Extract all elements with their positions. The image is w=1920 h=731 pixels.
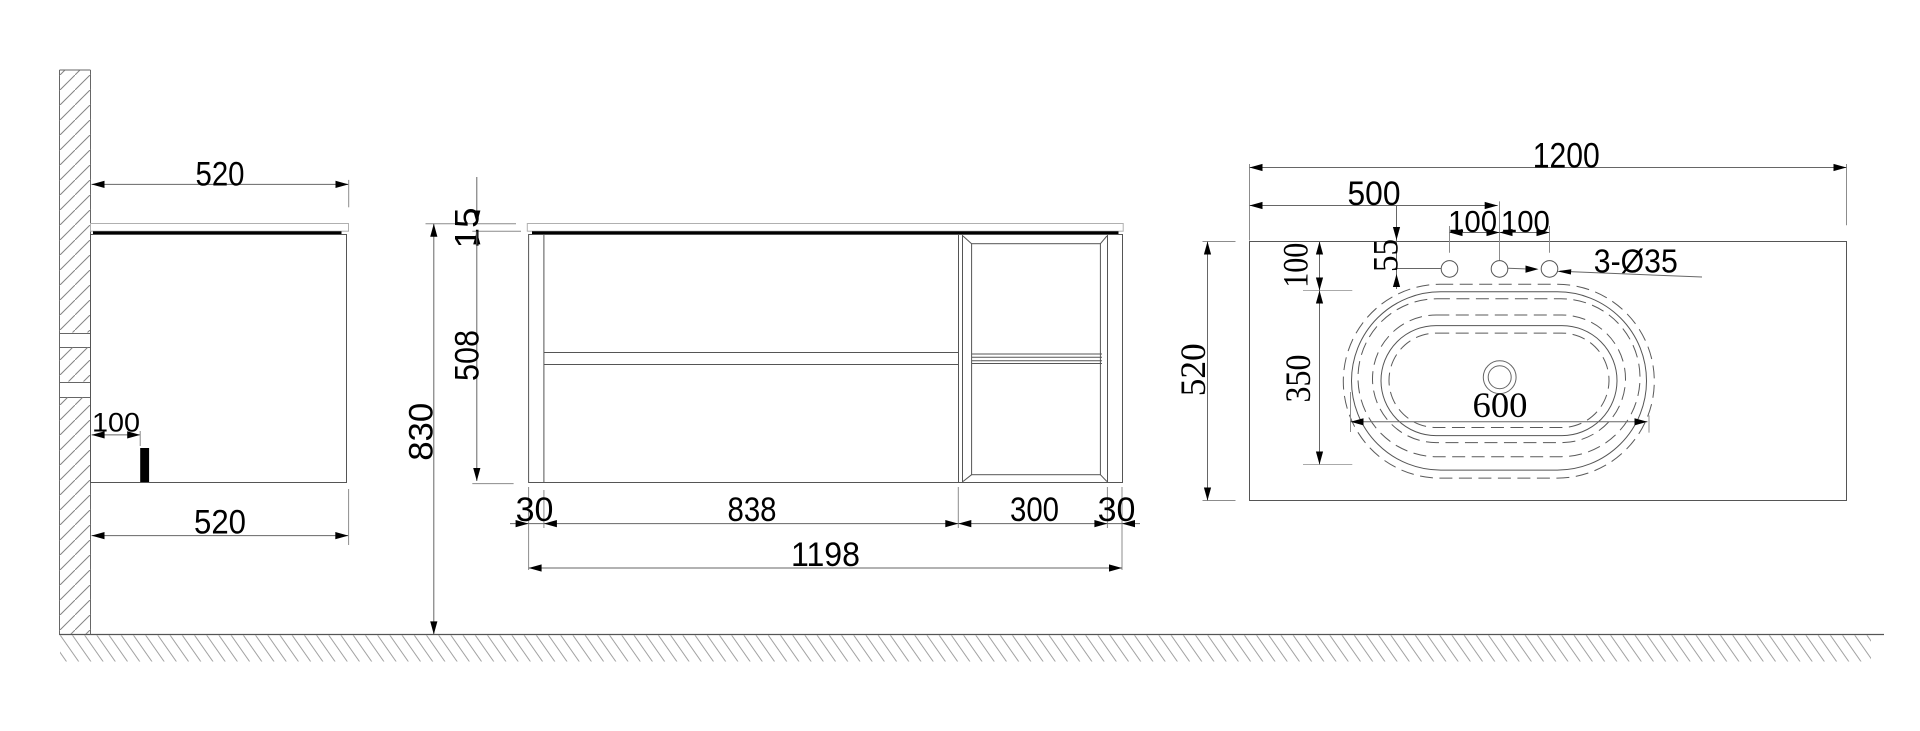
svg-text:520: 520 [196,156,245,194]
svg-text:508: 508 [449,330,487,381]
svg-text:15: 15 [449,208,487,249]
svg-text:838: 838 [728,491,777,529]
svg-text:30: 30 [1098,491,1136,529]
svg-text:500: 500 [1348,175,1401,213]
svg-text:830: 830 [403,403,441,461]
svg-text:30: 30 [516,491,554,529]
svg-text:600: 600 [1473,385,1528,425]
svg-text:100: 100 [1448,204,1497,239]
svg-text:1198: 1198 [791,536,860,574]
svg-text:55: 55 [1366,239,1406,272]
svg-text:3-Ø35: 3-Ø35 [1594,243,1678,280]
svg-text:100: 100 [92,408,140,438]
svg-text:100: 100 [1501,204,1550,239]
svg-text:520: 520 [1173,343,1213,396]
svg-text:300: 300 [1010,491,1059,529]
svg-text:100: 100 [1276,243,1316,288]
svg-text:1200: 1200 [1533,137,1600,176]
svg-text:350: 350 [1278,355,1318,403]
svg-text:520: 520 [194,504,246,542]
